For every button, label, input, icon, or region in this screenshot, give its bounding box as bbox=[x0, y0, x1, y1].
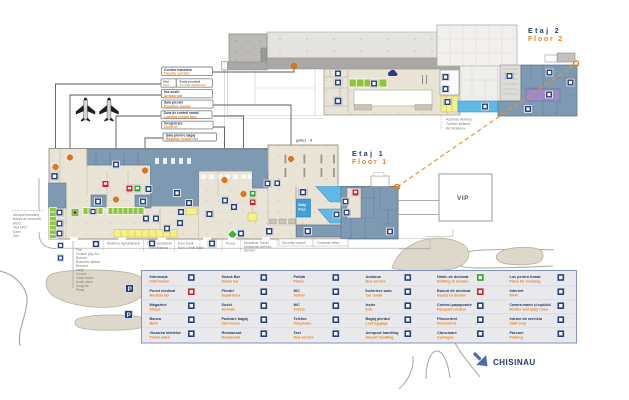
svg-text:Etaj 1: Etaj 1 bbox=[352, 151, 385, 158]
svg-text:WC: WC bbox=[294, 289, 301, 293]
svg-text:Consular department: Consular department bbox=[180, 83, 206, 87]
svg-text:Fitocontrol: Fitocontrol bbox=[437, 317, 457, 321]
svg-text:VIP: VIP bbox=[457, 195, 469, 202]
svg-text:P: P bbox=[128, 287, 132, 293]
svg-text:Telefon: Telefon bbox=[294, 317, 308, 321]
svg-text:Arrivals: Arrivals bbox=[222, 308, 235, 312]
svg-text:Control paşapoarte: Control paşapoarte bbox=[437, 303, 472, 307]
svg-text:Restaurant: Restaurant bbox=[222, 336, 242, 340]
svg-text:Floor 2: Floor 2 bbox=[528, 36, 564, 43]
svg-text:Nimic de declarat: Nimic de declarat bbox=[437, 275, 469, 279]
svg-text:Wi-Fi: Wi-Fi bbox=[510, 294, 519, 298]
svg-text:CHISINAU: CHISINAU bbox=[493, 358, 536, 367]
svg-text:Parcare: Parcare bbox=[510, 331, 524, 335]
svg-text:Fitocontrol: Fitocontrol bbox=[437, 322, 456, 326]
svg-text:Închiriere auto: Închiriere auto bbox=[365, 288, 393, 293]
svg-text:Floor 1: Floor 1 bbox=[352, 159, 388, 166]
svg-text:Airport handling: Airport handling bbox=[366, 336, 394, 340]
svg-text:Toilets: Toilets bbox=[294, 308, 305, 312]
svg-text:Customs office: Customs office bbox=[317, 241, 339, 245]
svg-text:Place for smoking: Place for smoking bbox=[510, 279, 541, 283]
svg-text:Customs control zone: Customs control zone bbox=[164, 115, 198, 119]
svg-text:Air Moldova: Air Moldova bbox=[446, 127, 465, 131]
svg-text:Poliţia: Poliţia bbox=[294, 275, 306, 279]
svg-text:Arrivals hall: Arrivals hall bbox=[164, 94, 182, 98]
svg-text:Cărucioare: Cărucioare bbox=[437, 331, 457, 335]
svg-text:Goods to declare: Goods to declare bbox=[437, 294, 466, 298]
svg-text:Information: Information bbox=[150, 279, 170, 283]
svg-text:Magazine: Magazine bbox=[150, 303, 167, 307]
svg-text:Moldova Agroindbank: Moldova Agroindbank bbox=[107, 242, 140, 246]
svg-text:Duty: Duty bbox=[299, 203, 307, 207]
svg-text:Toilets: Toilets bbox=[294, 294, 305, 298]
svg-text:Bunuri de declarat: Bunuri de declarat bbox=[437, 289, 471, 293]
svg-text:Nothing to declare: Nothing to declare bbox=[437, 279, 469, 283]
svg-text:Bus service: Bus service bbox=[366, 279, 386, 283]
svg-text:Exit: Exit bbox=[366, 308, 373, 312]
svg-text:Storeroom: Storeroom bbox=[222, 322, 240, 326]
svg-text:Bagaj pierdut: Bagaj pierdut bbox=[366, 317, 391, 321]
svg-text:Car rental: Car rental bbox=[366, 294, 383, 298]
svg-text:Plecări: Plecări bbox=[222, 289, 234, 293]
svg-text:Euro Credit Bank: Euro Credit Bank bbox=[178, 246, 204, 250]
svg-text:P: P bbox=[127, 313, 131, 319]
svg-text:Vinzarea biletelor: Vinzarea biletelor bbox=[150, 331, 182, 335]
svg-text:Austrian Airlines: Austrian Airlines bbox=[446, 118, 472, 122]
svg-text:Turkish Airlines: Turkish Airlines bbox=[446, 122, 470, 126]
svg-text:Secția consulară: Secția consulară bbox=[180, 79, 201, 83]
svg-text:Departures: Departures bbox=[222, 294, 241, 298]
svg-text:Presa: Presa bbox=[76, 288, 85, 292]
svg-text:Lost luggage: Lost luggage bbox=[366, 322, 388, 326]
svg-text:Transfer corridor: Transfer corridor bbox=[164, 72, 190, 76]
svg-text:Loc pentru fumat: Loc pentru fumat bbox=[510, 275, 542, 279]
svg-text:Autobus: Autobus bbox=[366, 275, 381, 279]
svg-text:Medical aid: Medical aid bbox=[150, 294, 169, 298]
svg-text:Restaurant: Restaurant bbox=[222, 331, 243, 335]
svg-text:Security control: Security control bbox=[282, 241, 306, 245]
svg-text:Parking: Parking bbox=[510, 336, 523, 340]
svg-text:Passport control: Passport control bbox=[437, 308, 466, 312]
svg-text:Etaj 2: Etaj 2 bbox=[528, 28, 561, 35]
svg-text:Punct medical: Punct medical bbox=[150, 289, 176, 293]
svg-text:Ticket sales: Ticket sales bbox=[150, 336, 170, 340]
svg-text:WC: WC bbox=[294, 303, 301, 307]
svg-text:Free: Free bbox=[299, 208, 306, 212]
svg-text:Internet: Internet bbox=[510, 289, 525, 293]
svg-text:Informaţie: Informaţie bbox=[150, 275, 168, 279]
svg-text:gate1 - 4: gate1 - 4 bbox=[296, 138, 313, 143]
svg-text:Presa: Presa bbox=[226, 242, 235, 246]
svg-text:Pastrare bagaj: Pastrare bagaj bbox=[222, 317, 248, 321]
svg-text:Taxi: Taxi bbox=[294, 331, 301, 335]
svg-text:Intrare de serviciu: Intrare de serviciu bbox=[510, 317, 543, 321]
svg-text:Police: Police bbox=[294, 279, 305, 283]
svg-text:Staff only: Staff only bbox=[510, 322, 526, 326]
svg-text:Mother and baby room: Mother and baby room bbox=[510, 308, 549, 312]
svg-text:Aeroport handling: Aeroport handling bbox=[366, 331, 400, 335]
svg-text:Baggage reclaim hall: Baggage reclaim hall bbox=[166, 137, 198, 141]
svg-text:Sosiri: Sosiri bbox=[222, 303, 233, 307]
svg-text:Bank: Bank bbox=[150, 322, 159, 326]
svg-text:Taxi service: Taxi service bbox=[294, 336, 314, 340]
svg-text:Snack Bar: Snack Bar bbox=[222, 275, 241, 279]
svg-text:Sixt: Sixt bbox=[13, 234, 19, 238]
svg-text:Shops: Shops bbox=[150, 308, 161, 312]
svg-text:Departure lounge: Departure lounge bbox=[164, 104, 191, 108]
svg-text:Camera mamei şi copilului: Camera mamei şi copilului bbox=[510, 303, 552, 307]
svg-text:Snack bar: Snack bar bbox=[222, 279, 240, 283]
svg-text:Telephone: Telephone bbox=[294, 322, 312, 326]
svg-text:Carriages: Carriages bbox=[437, 336, 454, 340]
svg-text:Check in: Check in bbox=[164, 125, 177, 129]
svg-text:Banca: Banca bbox=[150, 317, 162, 321]
svg-text:Ieşire: Ieşire bbox=[366, 303, 376, 307]
svg-text:Visa: Visa bbox=[163, 83, 169, 87]
svg-text:Aerotur: Aerotur bbox=[244, 249, 256, 253]
